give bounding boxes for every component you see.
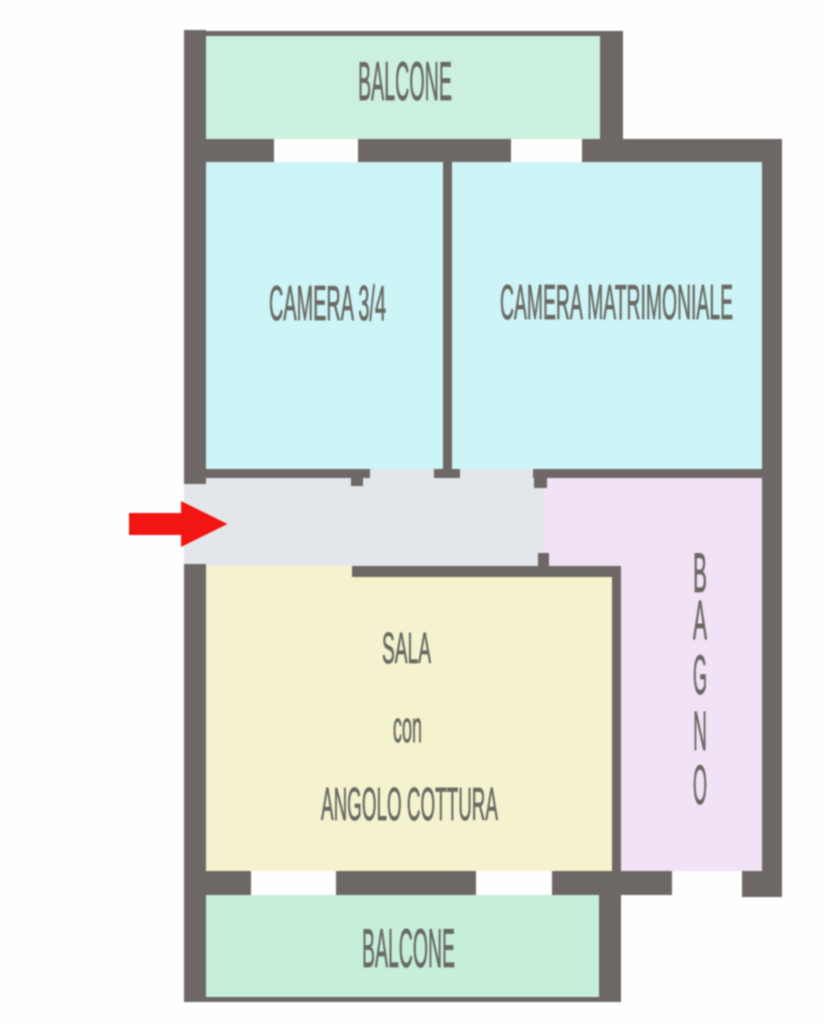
svg-text:BALCONE: BALCONE	[362, 917, 455, 979]
svg-text:ANGOLO COTTURA: ANGOLO COTTURA	[321, 778, 498, 830]
svg-text:CAMERA MATRIMONIALE: CAMERA MATRIMONIALE	[500, 276, 733, 330]
svg-text:A: A	[693, 588, 707, 651]
svg-text:CAMERA 3/4: CAMERA 3/4	[269, 277, 386, 331]
svg-text:O: O	[693, 753, 707, 816]
svg-text:BALCONE: BALCONE	[358, 50, 452, 112]
svg-text:SALA: SALA	[382, 624, 431, 673]
svg-text:con: con	[393, 703, 422, 752]
svg-text:G: G	[693, 643, 707, 706]
